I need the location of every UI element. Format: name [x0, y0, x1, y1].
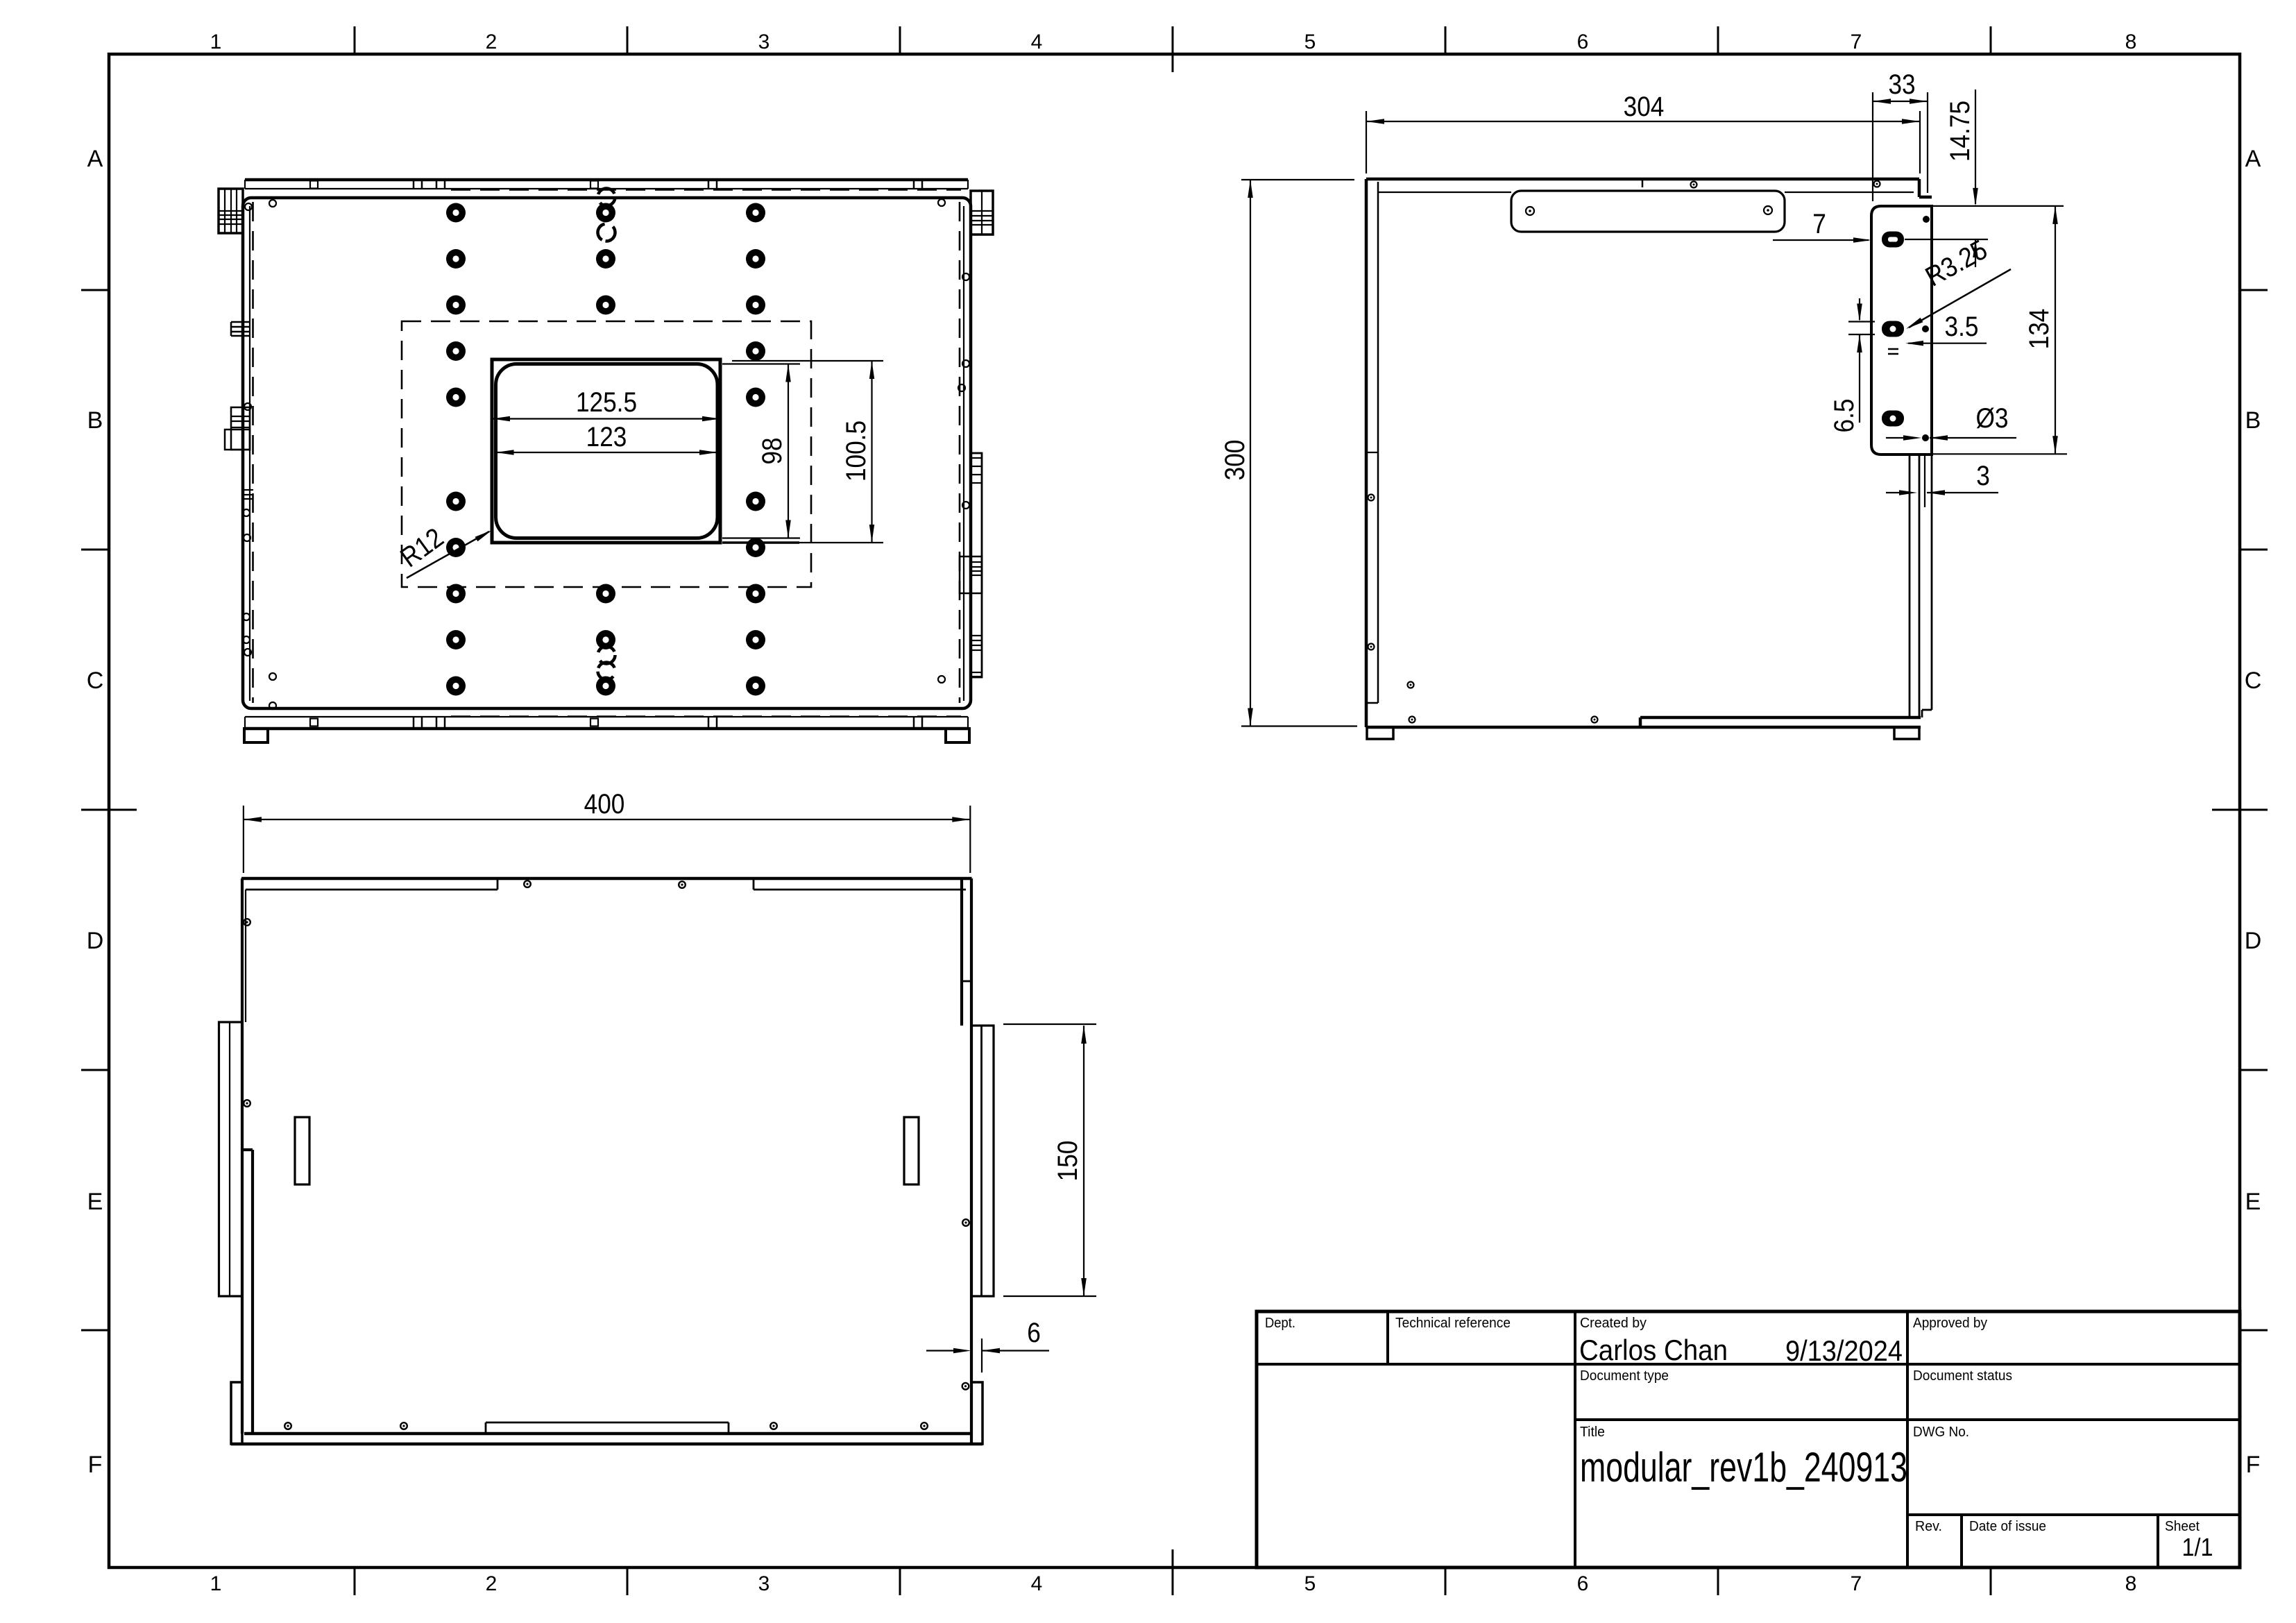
svg-text:300: 300 — [1220, 440, 1250, 481]
svg-text:A: A — [87, 146, 103, 172]
svg-text:Document status: Document status — [1913, 1368, 2012, 1384]
svg-text:Approved by: Approved by — [1913, 1316, 1987, 1331]
svg-text:3: 3 — [1976, 461, 1990, 491]
svg-text:DWG No.: DWG No. — [1913, 1425, 1969, 1440]
svg-text:98: 98 — [757, 437, 788, 464]
svg-text:134: 134 — [2024, 309, 2055, 350]
svg-text:6.5: 6.5 — [1829, 399, 1860, 433]
svg-text:C: C — [87, 668, 104, 694]
svg-text:2: 2 — [486, 1572, 498, 1595]
svg-text:2: 2 — [486, 31, 498, 53]
svg-text:Sheet: Sheet — [2165, 1519, 2200, 1534]
svg-text:125.5: 125.5 — [576, 387, 637, 418]
svg-text:9/13/2024: 9/13/2024 — [1785, 1334, 1903, 1367]
svg-text:Date of issue: Date of issue — [1969, 1519, 2046, 1534]
svg-text:33: 33 — [1888, 69, 1915, 100]
svg-text:Created by: Created by — [1580, 1316, 1647, 1331]
svg-text:7: 7 — [1851, 1572, 1862, 1595]
svg-text:3: 3 — [758, 1572, 770, 1595]
svg-text:B: B — [87, 407, 103, 434]
svg-text:modular_rev1b_240913: modular_rev1b_240913 — [1580, 1444, 1907, 1490]
svg-text:123: 123 — [586, 422, 627, 452]
svg-text:4: 4 — [1031, 31, 1043, 53]
svg-text:3: 3 — [758, 31, 770, 53]
svg-text:F: F — [88, 1452, 103, 1478]
svg-text:6: 6 — [1577, 1572, 1589, 1595]
svg-text:8: 8 — [2125, 31, 2137, 53]
svg-text:Rev.: Rev. — [1915, 1519, 1942, 1534]
svg-text:5: 5 — [1304, 31, 1316, 53]
svg-text:Dept.: Dept. — [1265, 1316, 1295, 1331]
svg-text:7: 7 — [1812, 209, 1826, 239]
svg-text:1: 1 — [210, 31, 222, 53]
svg-text:Document type: Document type — [1580, 1368, 1669, 1384]
svg-text:Carlos Chan: Carlos Chan — [1579, 1334, 1728, 1366]
svg-text:3.5: 3.5 — [1945, 312, 1979, 342]
svg-text:Ø3: Ø3 — [1976, 403, 2009, 434]
svg-text:D: D — [87, 928, 104, 954]
svg-text:A: A — [2245, 146, 2261, 172]
svg-text:Technical reference: Technical reference — [1395, 1316, 1511, 1331]
svg-text:Title: Title — [1580, 1425, 1605, 1440]
svg-text:4: 4 — [1031, 1572, 1043, 1595]
svg-text:1: 1 — [210, 1572, 222, 1595]
svg-text:1/1: 1/1 — [2182, 1533, 2213, 1561]
svg-text:6: 6 — [1577, 31, 1589, 53]
svg-text:F: F — [2246, 1452, 2261, 1478]
svg-text:150: 150 — [1053, 1141, 1083, 1182]
svg-text:304: 304 — [1624, 92, 1665, 122]
svg-text:6: 6 — [1027, 1318, 1041, 1348]
svg-text:14.75: 14.75 — [1945, 101, 1975, 162]
svg-text:E: E — [2245, 1189, 2261, 1215]
svg-text:E: E — [87, 1189, 103, 1215]
svg-text:D: D — [2245, 928, 2262, 954]
svg-text:8: 8 — [2125, 1572, 2137, 1595]
svg-text:400: 400 — [584, 789, 625, 819]
svg-text:C: C — [2245, 668, 2262, 694]
svg-text:5: 5 — [1304, 1572, 1316, 1595]
svg-text:B: B — [2245, 407, 2261, 434]
svg-text:7: 7 — [1851, 31, 1862, 53]
svg-text:100.5: 100.5 — [841, 420, 871, 482]
